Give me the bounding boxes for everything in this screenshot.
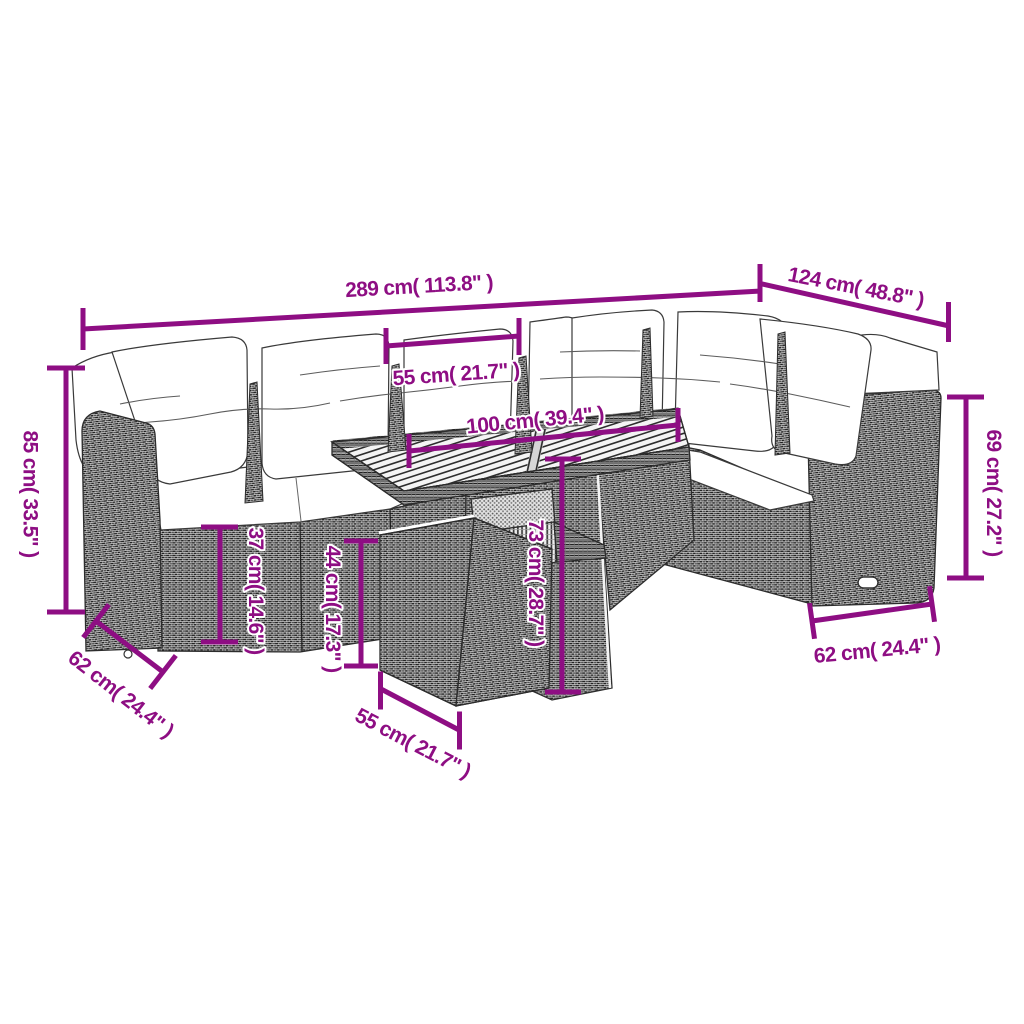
svg-text:85 cm( 33.5" ): 85 cm( 33.5" ) bbox=[19, 431, 42, 558]
svg-text:55 cm( 21.7" ): 55 cm( 21.7" ) bbox=[351, 704, 474, 783]
svg-text:62 cm( 24.4" ): 62 cm( 24.4" ) bbox=[813, 633, 942, 668]
svg-text:37 cm( 14.6" ): 37 cm( 14.6" ) bbox=[244, 528, 267, 655]
svg-text:44 cm( 17.3" ): 44 cm( 17.3" ) bbox=[321, 546, 344, 673]
svg-text:69 cm( 27.2" ): 69 cm( 27.2" ) bbox=[982, 430, 1005, 557]
svg-text:62 cm( 24.4" ): 62 cm( 24.4" ) bbox=[64, 646, 178, 742]
svg-text:289 cm( 113.8" ): 289 cm( 113.8" ) bbox=[345, 271, 494, 302]
svg-text:73 cm( 28.7" ): 73 cm( 28.7" ) bbox=[524, 520, 547, 647]
